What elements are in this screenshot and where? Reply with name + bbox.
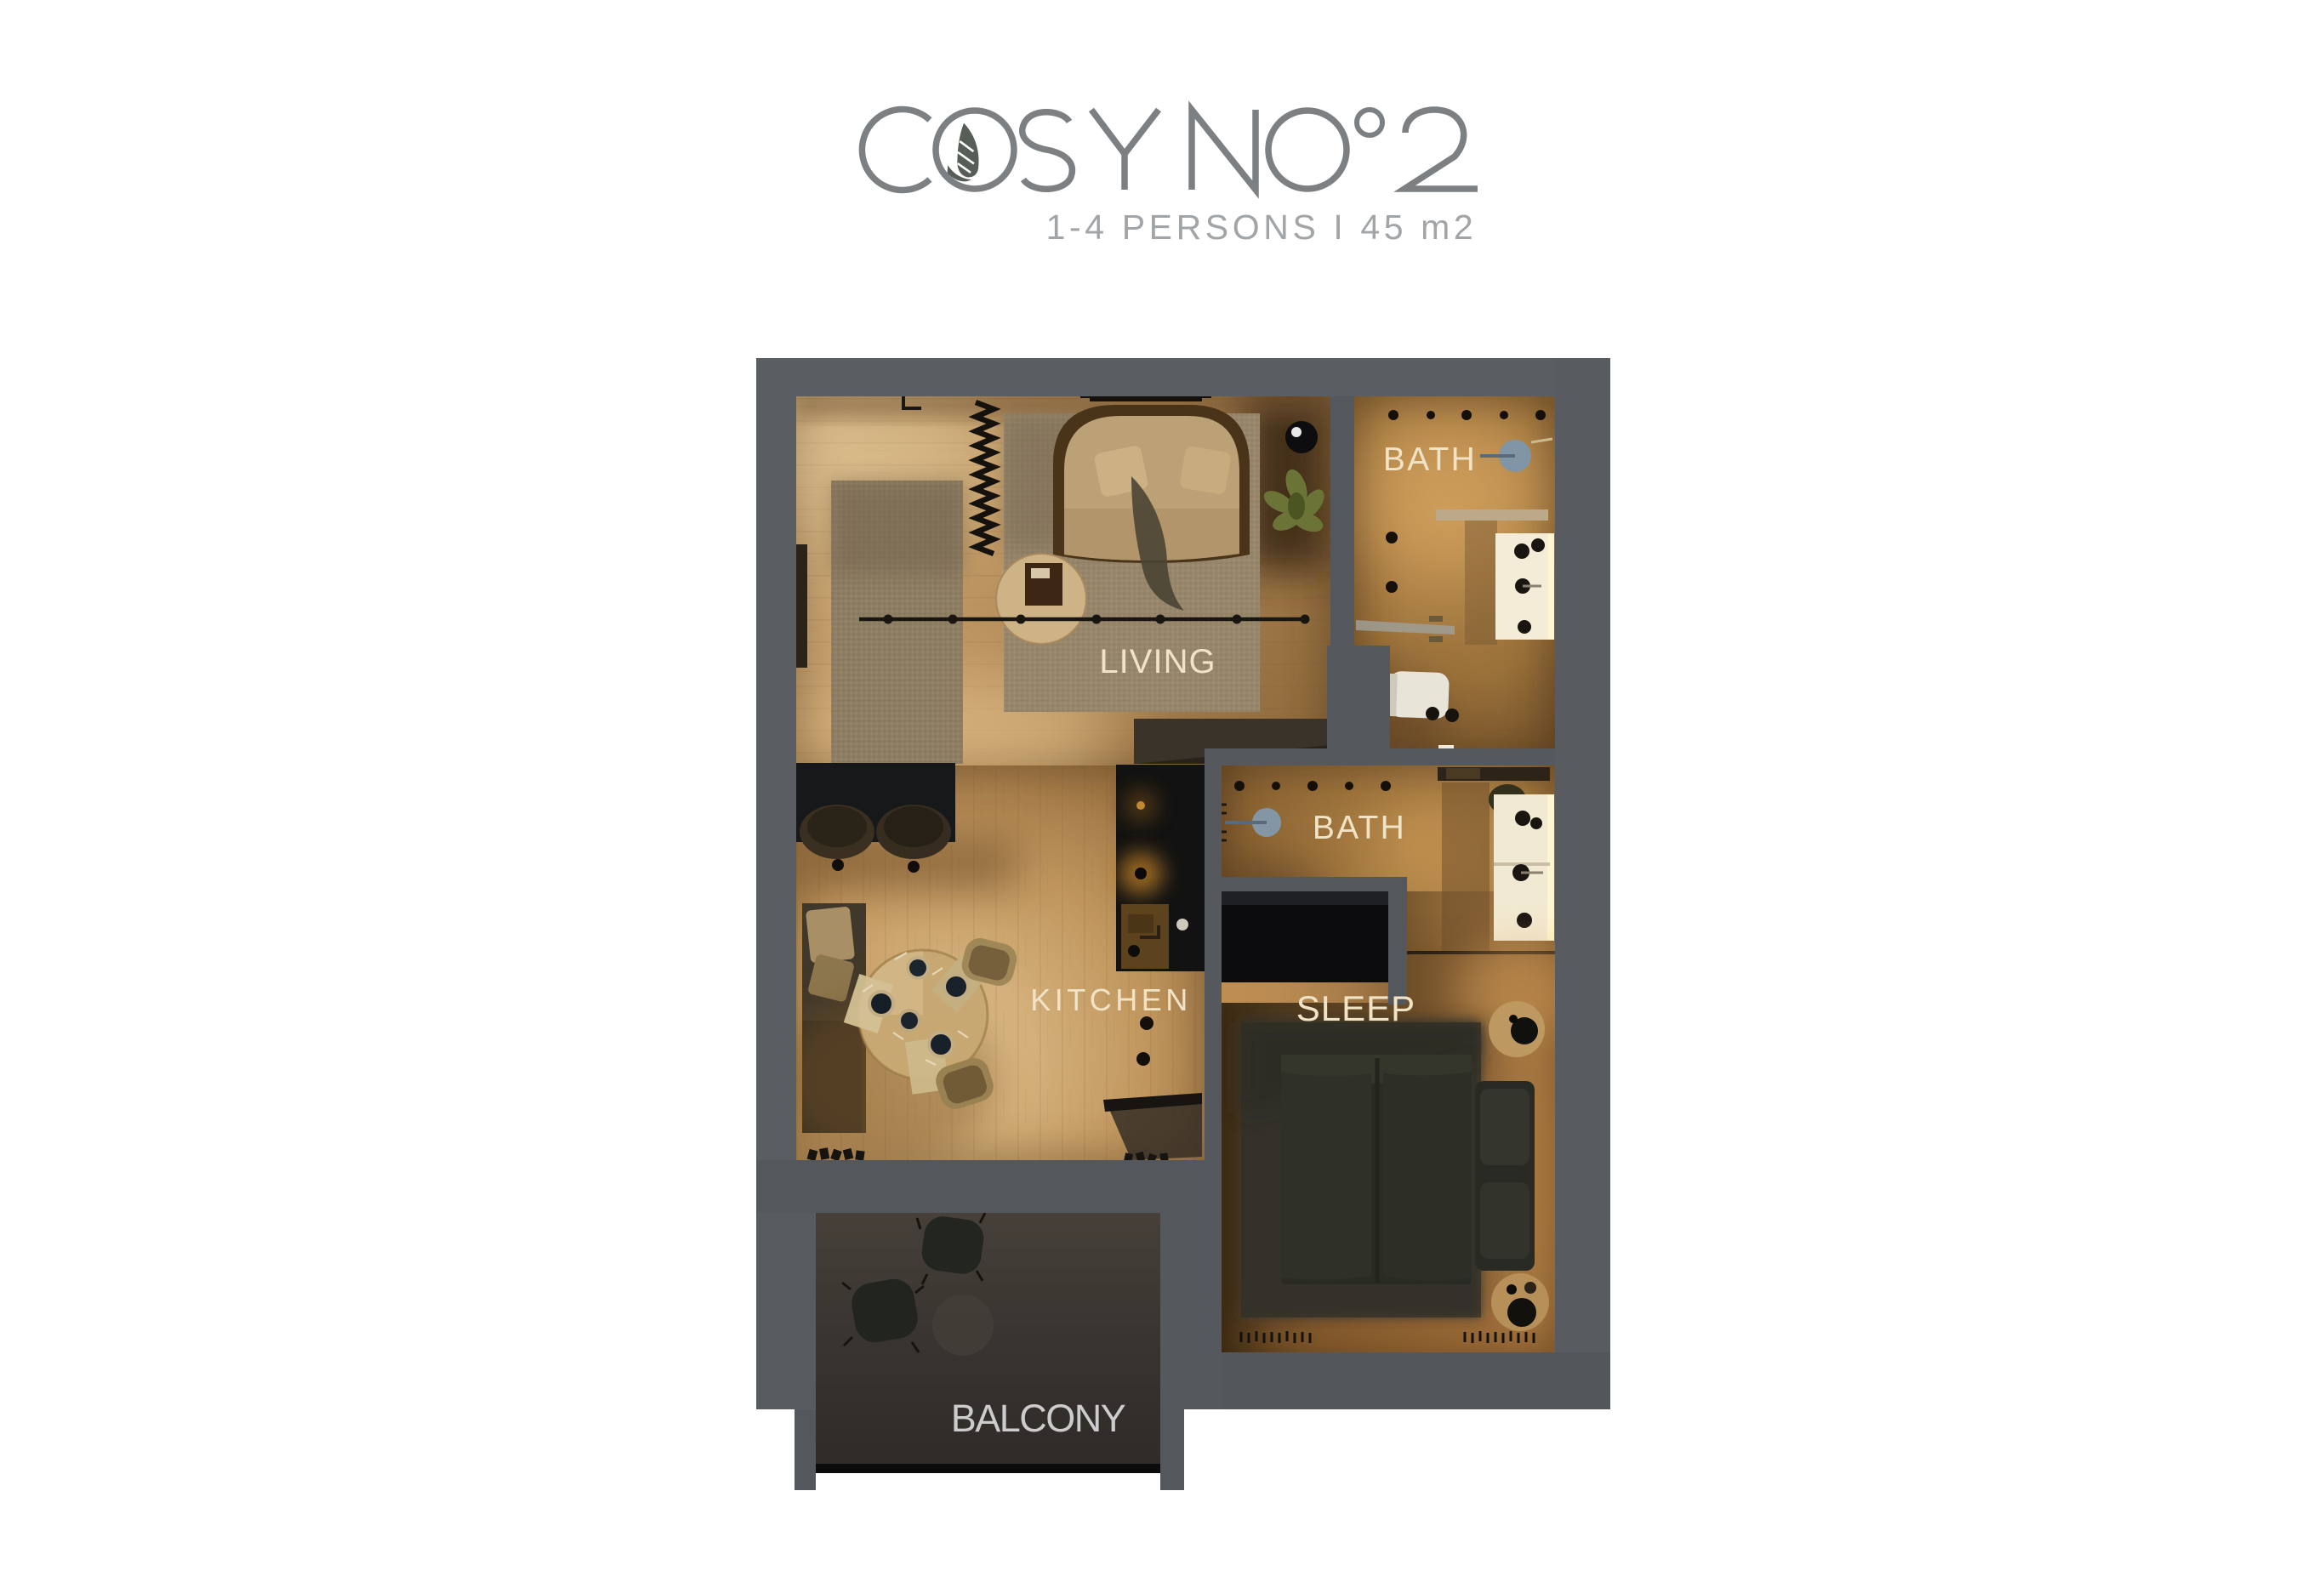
svg-text:BATH: BATH: [1313, 810, 1406, 846]
svg-text:LIVING: LIVING: [1099, 643, 1216, 680]
svg-text:BATH: BATH: [1383, 441, 1477, 478]
svg-text:1-4 PERSONS I 45 m2: 1-4 PERSONS I 45 m2: [1046, 208, 1478, 247]
svg-text:SLEEP: SLEEP: [1296, 988, 1415, 1028]
svg-text:BALCONY: BALCONY: [951, 1397, 1126, 1440]
svg-text:KITCHEN: KITCHEN: [1030, 982, 1192, 1017]
